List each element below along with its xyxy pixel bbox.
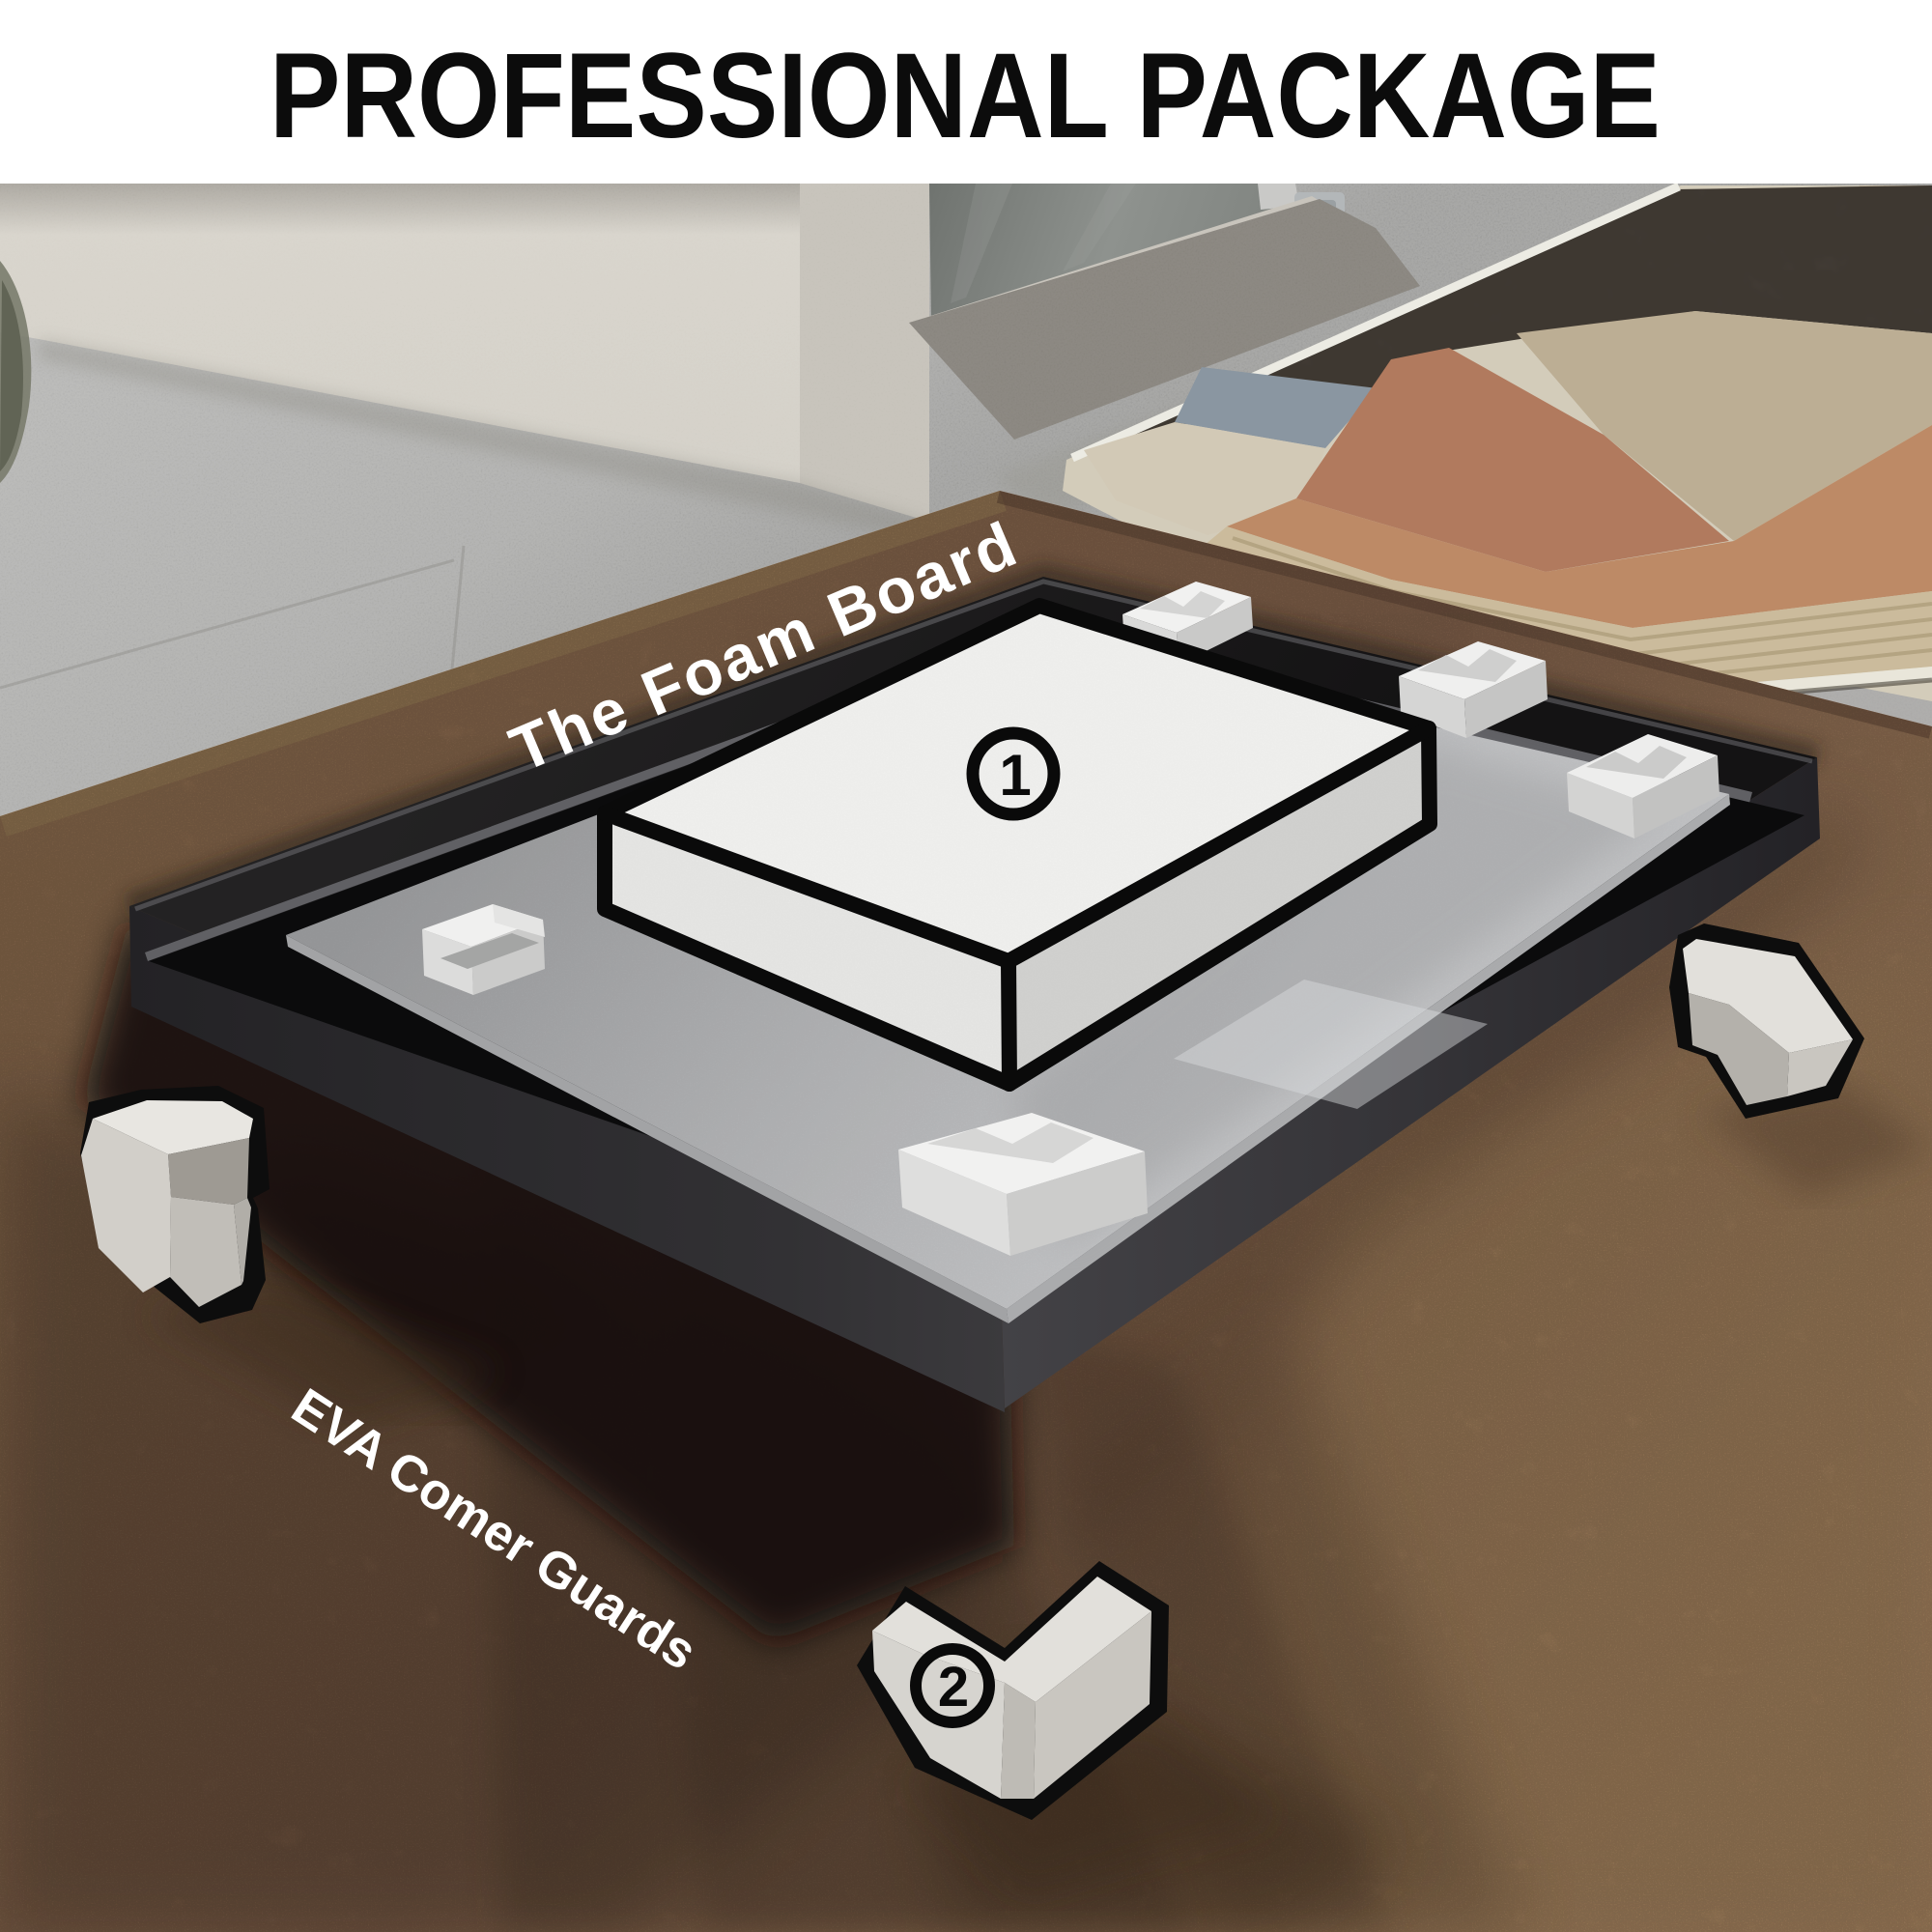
svg-text:1: 1 — [999, 743, 1031, 808]
svg-text:PROFESSIONAL PACKAGE: PROFESSIONAL PACKAGE — [270, 29, 1661, 163]
svg-text:2: 2 — [938, 1656, 969, 1719]
